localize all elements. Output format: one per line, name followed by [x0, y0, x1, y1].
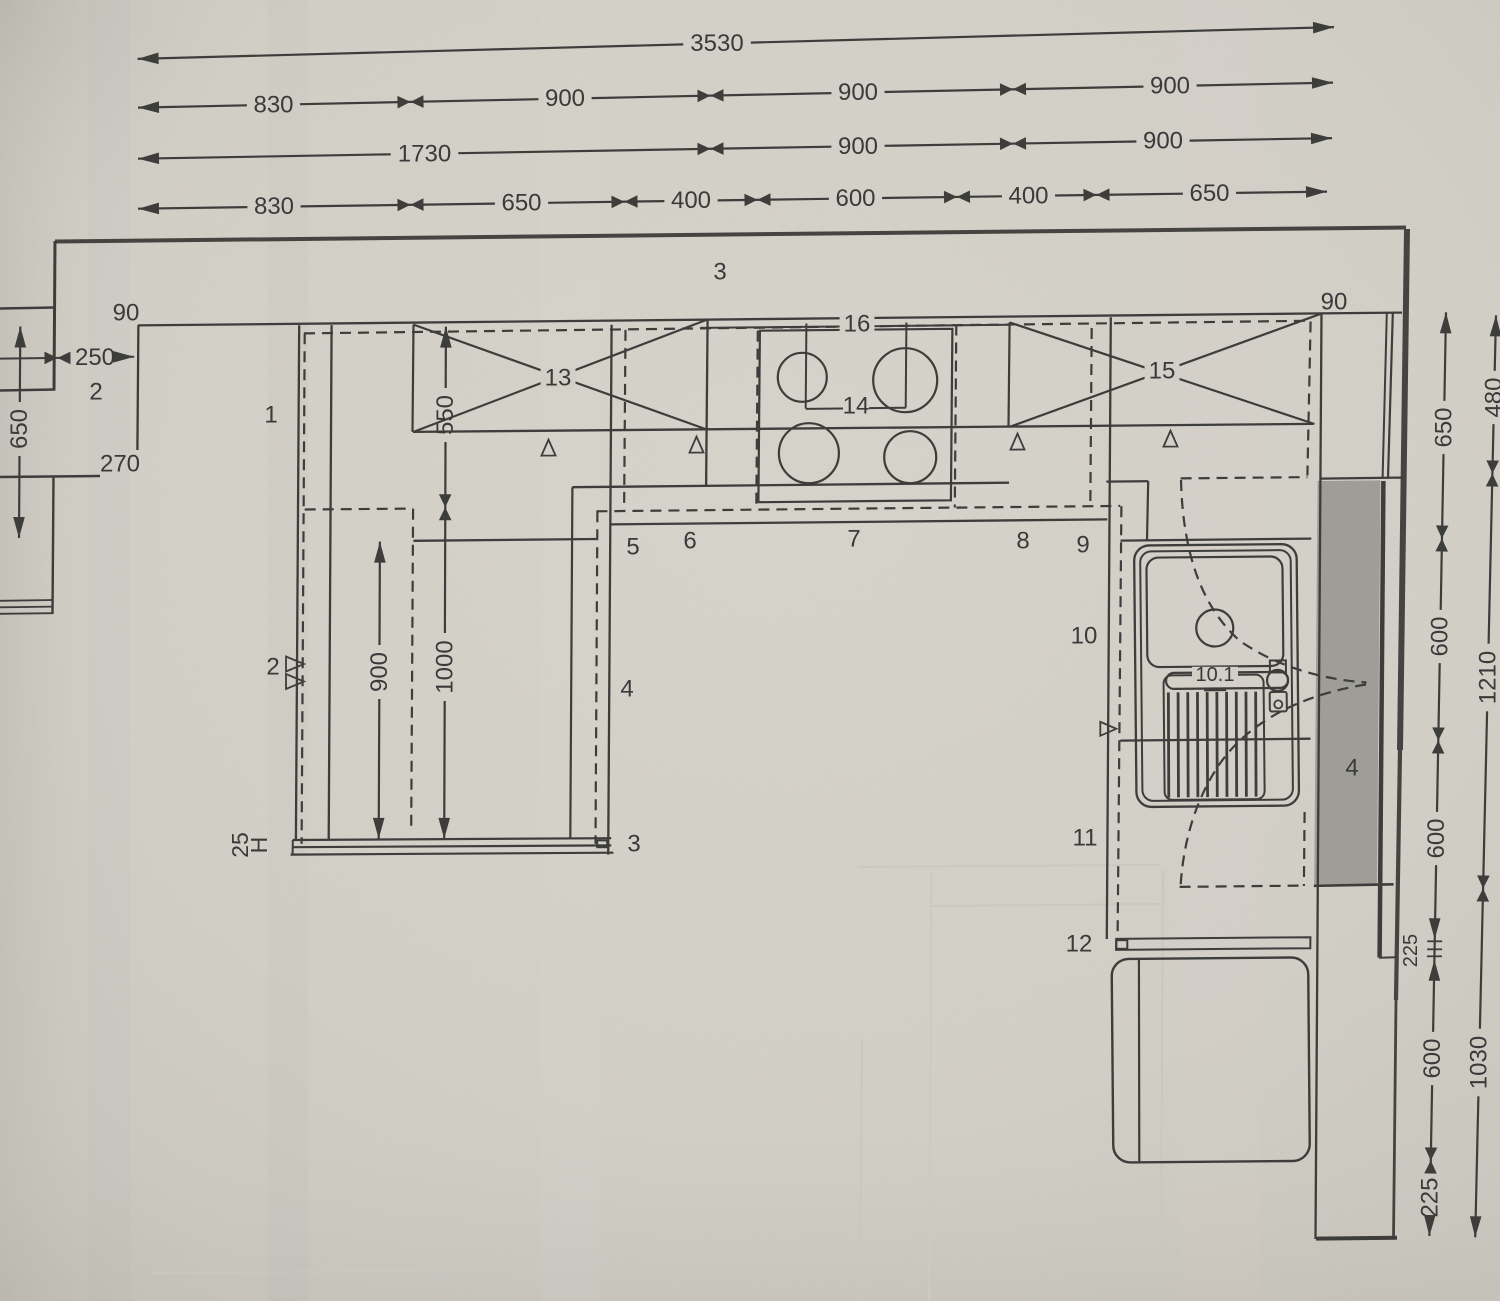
svg-text:900: 900: [366, 652, 393, 692]
svg-text:600: 600: [1423, 818, 1450, 858]
svg-text:225: 225: [1400, 934, 1422, 967]
svg-text:3: 3: [713, 259, 726, 286]
svg-text:900: 900: [545, 85, 585, 112]
svg-text:3530: 3530: [690, 30, 743, 57]
svg-text:1210: 1210: [1474, 651, 1500, 704]
svg-text:600: 600: [835, 185, 875, 212]
svg-text:10.1: 10.1: [1196, 664, 1235, 686]
svg-text:9: 9: [1076, 532, 1089, 559]
svg-text:4: 4: [1345, 755, 1358, 782]
svg-text:900: 900: [838, 79, 878, 106]
svg-text:16: 16: [844, 311, 871, 338]
svg-text:90: 90: [113, 300, 140, 327]
svg-text:480: 480: [1481, 377, 1500, 417]
svg-text:1730: 1730: [398, 140, 451, 167]
svg-text:400: 400: [671, 187, 711, 214]
svg-text:8: 8: [1016, 528, 1029, 555]
svg-text:14: 14: [843, 393, 870, 420]
svg-text:12: 12: [1066, 931, 1093, 958]
svg-text:900: 900: [1143, 128, 1183, 155]
svg-text:90: 90: [1321, 289, 1348, 316]
svg-text:5: 5: [626, 534, 639, 561]
svg-text:1030: 1030: [1466, 1036, 1493, 1089]
svg-text:650: 650: [6, 409, 33, 449]
svg-text:270: 270: [100, 451, 140, 478]
svg-text:6: 6: [683, 528, 696, 555]
svg-text:10: 10: [1071, 623, 1098, 650]
svg-text:3: 3: [627, 831, 640, 858]
svg-text:7: 7: [847, 526, 860, 553]
svg-text:4: 4: [620, 676, 633, 703]
svg-text:650: 650: [1430, 407, 1457, 447]
svg-text:11: 11: [1073, 825, 1098, 852]
svg-text:650: 650: [1189, 180, 1229, 207]
svg-text:650: 650: [501, 190, 541, 217]
svg-text:550: 550: [432, 395, 459, 435]
svg-text:600: 600: [1427, 616, 1454, 656]
svg-text:830: 830: [254, 193, 294, 220]
svg-text:1: 1: [264, 402, 277, 429]
svg-text:2: 2: [266, 654, 279, 681]
svg-text:225: 225: [1417, 1177, 1444, 1217]
svg-text:H: H: [246, 837, 272, 854]
svg-text:400: 400: [1008, 182, 1048, 209]
svg-text:15: 15: [1149, 358, 1176, 385]
svg-text:600: 600: [1419, 1038, 1446, 1078]
svg-text:900: 900: [838, 133, 878, 160]
svg-text:250: 250: [75, 344, 115, 371]
svg-text:13: 13: [545, 365, 572, 392]
svg-text:900: 900: [1150, 73, 1190, 100]
svg-text:830: 830: [253, 91, 293, 118]
svg-text:1000: 1000: [431, 640, 458, 693]
svg-text:2: 2: [89, 379, 102, 406]
